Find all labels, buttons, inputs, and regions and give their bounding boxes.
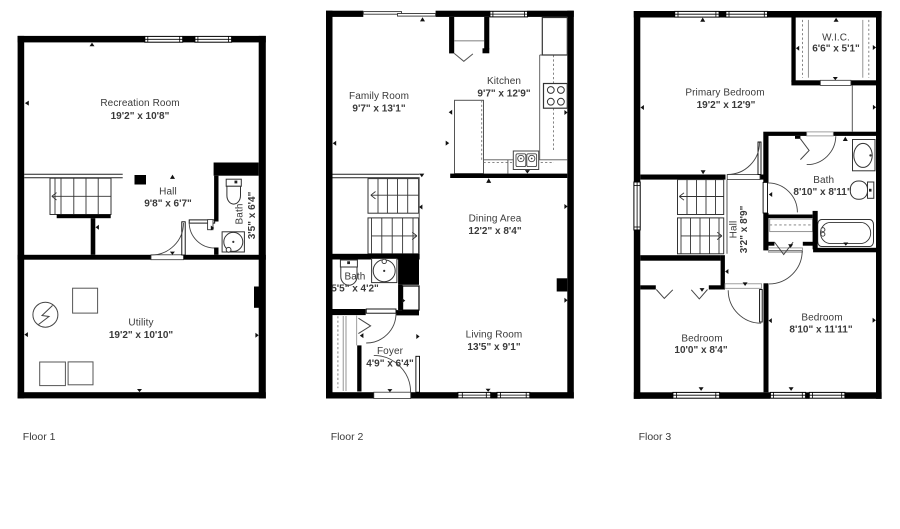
svg-text:8'10" x 8'11": 8'10" x 8'11" bbox=[793, 187, 851, 198]
svg-text:Bedroom: Bedroom bbox=[681, 334, 722, 345]
svg-text:9'8" x 6'7": 9'8" x 6'7" bbox=[144, 199, 192, 210]
svg-text:Hall: Hall bbox=[159, 187, 177, 198]
svg-text:19'2" x 12'9": 19'2" x 12'9" bbox=[697, 100, 756, 111]
svg-text:Recreation Room: Recreation Room bbox=[100, 98, 179, 109]
svg-text:19'2" x 10'8": 19'2" x 10'8" bbox=[111, 111, 170, 122]
svg-text:Hall: Hall bbox=[729, 221, 740, 239]
svg-text:13'5" x 9'1": 13'5" x 9'1" bbox=[467, 342, 520, 353]
svg-text:9'7" x 12'9": 9'7" x 12'9" bbox=[477, 89, 530, 100]
svg-text:Primary Bedroom: Primary Bedroom bbox=[685, 88, 764, 99]
svg-text:Bedroom: Bedroom bbox=[801, 313, 842, 324]
svg-text:Bath: Bath bbox=[345, 272, 366, 283]
svg-text:5'5" x 4'2": 5'5" x 4'2" bbox=[331, 284, 379, 295]
svg-text:3'5" x 6'4": 3'5" x 6'4" bbox=[247, 191, 258, 239]
svg-text:Bath: Bath bbox=[813, 175, 834, 186]
svg-text:Floor 2: Floor 2 bbox=[331, 431, 364, 443]
svg-text:W.I.C.: W.I.C. bbox=[822, 33, 850, 44]
svg-text:Kitchen: Kitchen bbox=[487, 76, 521, 87]
svg-text:3'2" x 8'9": 3'2" x 8'9" bbox=[739, 205, 750, 253]
svg-text:8'10" x 11'11": 8'10" x 11'11" bbox=[789, 325, 852, 336]
svg-text:12'2" x 8'4": 12'2" x 8'4" bbox=[468, 226, 521, 237]
svg-text:Dining Area: Dining Area bbox=[469, 214, 522, 225]
svg-text:Floor 1: Floor 1 bbox=[23, 431, 56, 443]
svg-text:Living Room: Living Room bbox=[466, 330, 523, 341]
svg-text:19'2" x 10'10": 19'2" x 10'10" bbox=[109, 330, 174, 341]
svg-text:Family Room: Family Room bbox=[349, 91, 409, 102]
svg-text:Floor 3: Floor 3 bbox=[639, 431, 672, 443]
svg-text:9'7" x 13'1": 9'7" x 13'1" bbox=[352, 104, 405, 115]
svg-text:4'9" x 6'4": 4'9" x 6'4" bbox=[366, 359, 414, 370]
svg-text:Foyer: Foyer bbox=[377, 346, 404, 357]
svg-text:6'6" x 5'1": 6'6" x 5'1" bbox=[812, 44, 860, 55]
svg-text:10'0" x 8'4": 10'0" x 8'4" bbox=[674, 345, 727, 356]
svg-text:Utility: Utility bbox=[128, 318, 153, 329]
svg-text:Bath: Bath bbox=[235, 204, 246, 225]
